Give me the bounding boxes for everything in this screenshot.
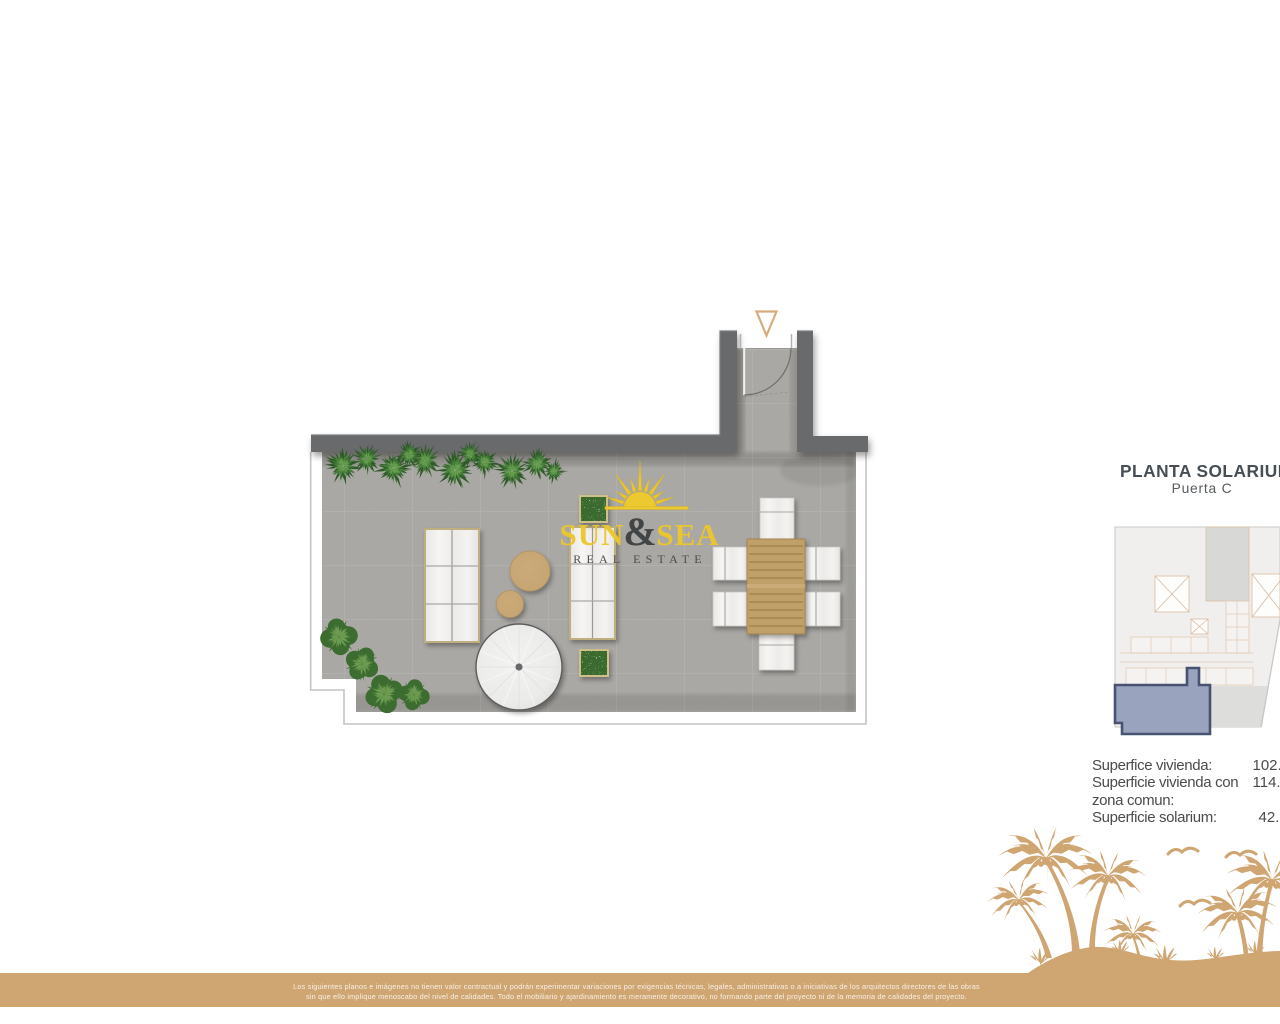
svg-text:&: &: [623, 509, 656, 554]
svg-text:SUN: SUN: [559, 517, 624, 552]
svg-text:REAL ESTATE: REAL ESTATE: [573, 552, 706, 566]
svg-text:SEA: SEA: [656, 517, 719, 552]
